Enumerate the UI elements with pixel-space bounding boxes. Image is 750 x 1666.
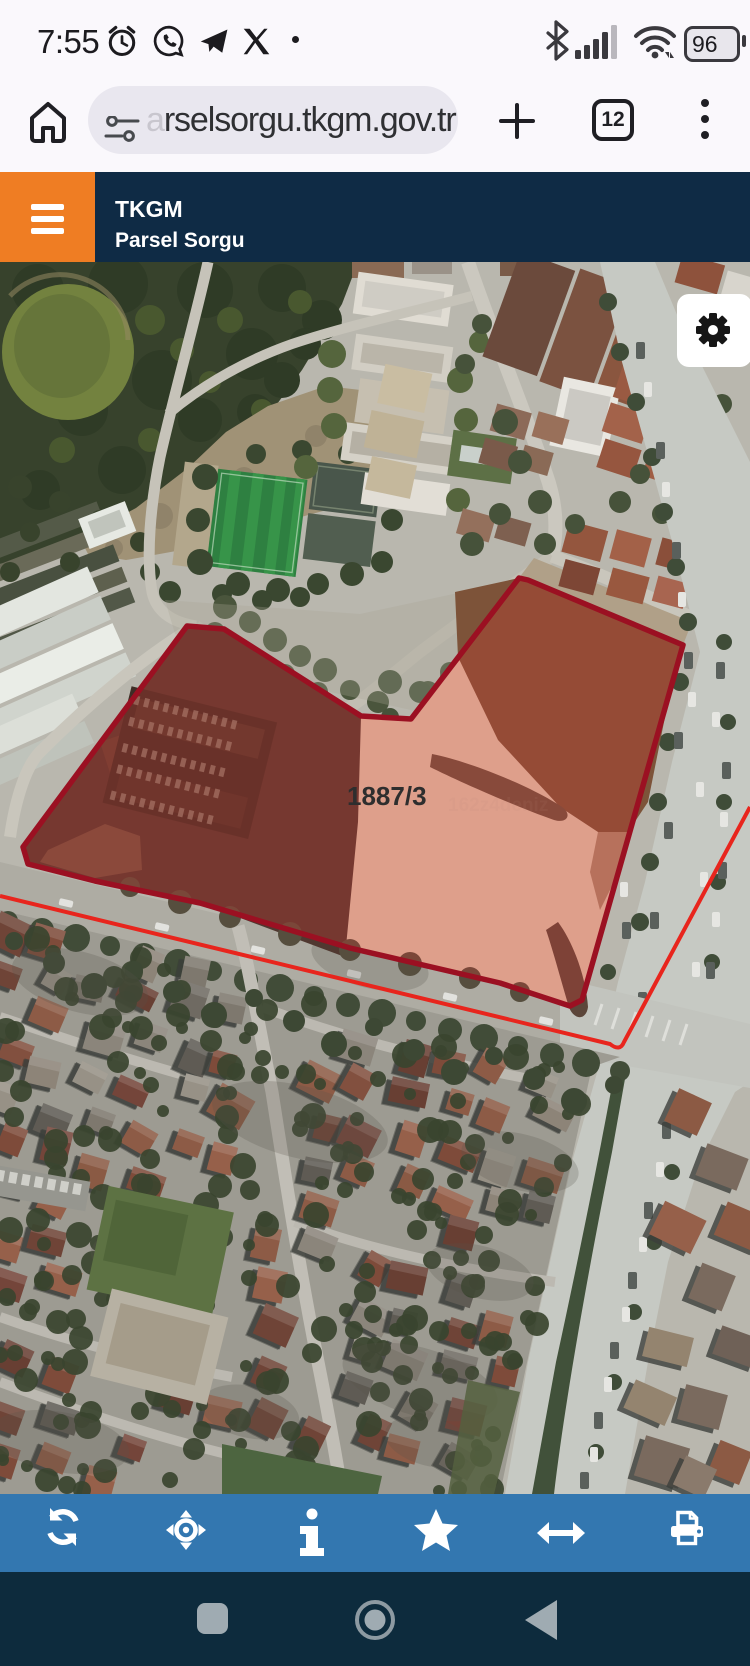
svg-text:1887/3: 1887/3: [347, 781, 427, 811]
svg-text:162z4deniz: 162z4deniz: [448, 795, 548, 816]
